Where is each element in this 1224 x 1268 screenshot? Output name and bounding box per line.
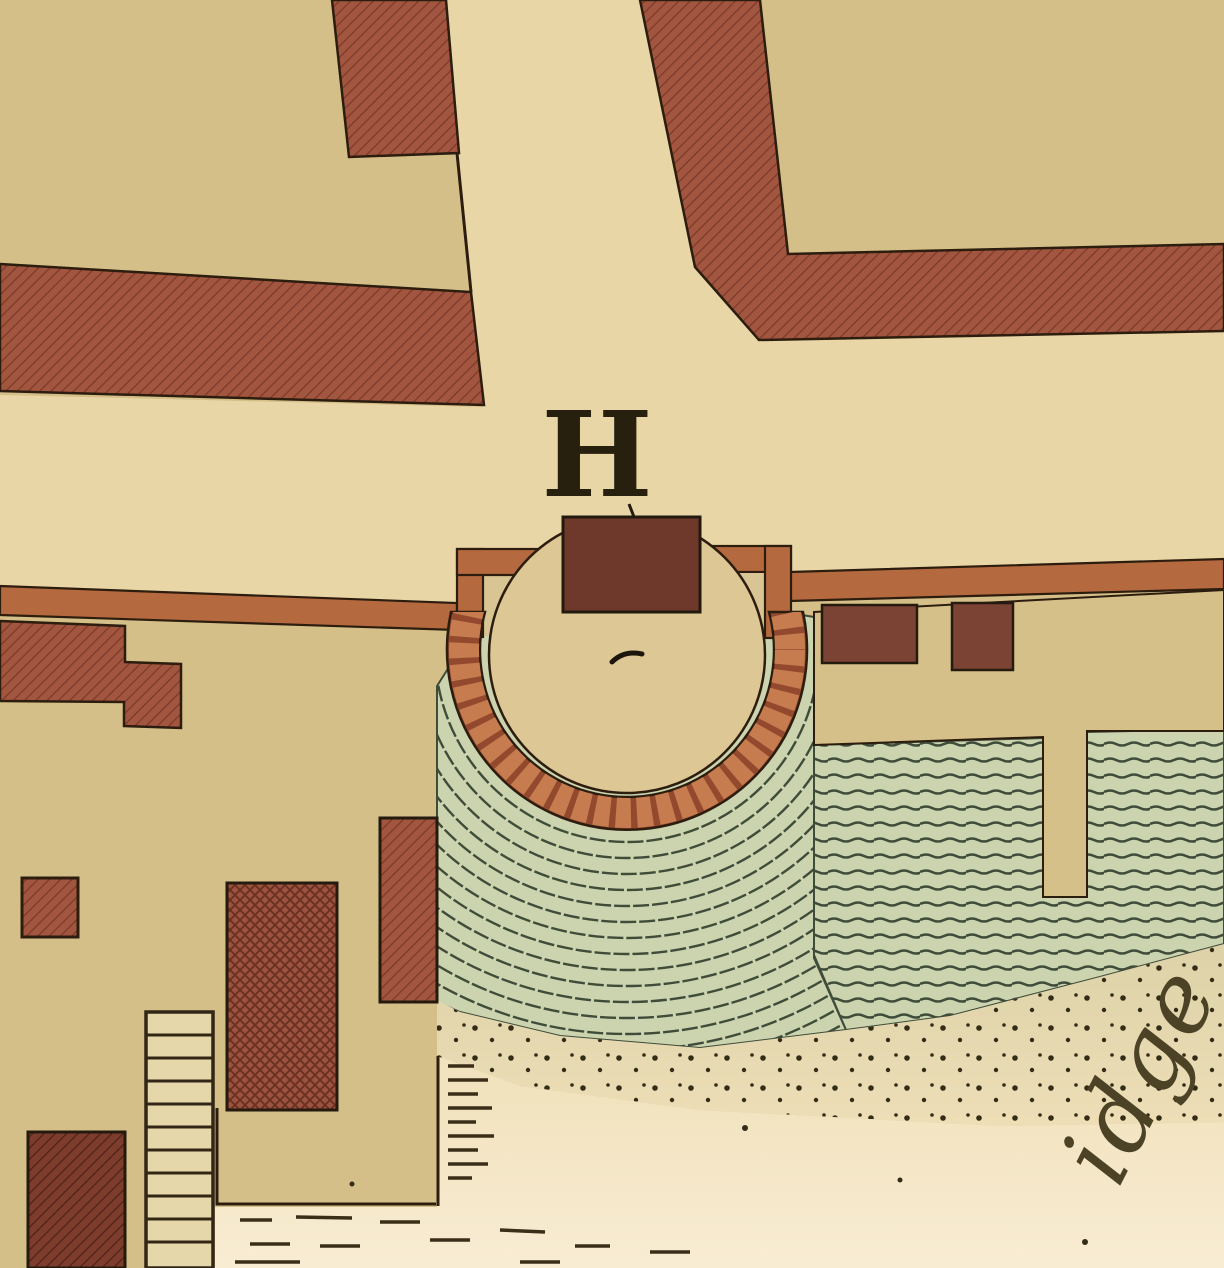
building-block-top-left (332, 0, 459, 157)
label-H: H (541, 385, 653, 524)
small-building (22, 878, 78, 937)
historical-town-plan: H idge (0, 0, 1224, 1268)
quay-building-2 (952, 603, 1013, 670)
ladder-jetty (146, 1012, 213, 1268)
map-canvas[interactable]: H idge (0, 0, 1224, 1268)
bank-building (380, 818, 437, 1002)
crosshatch-building (227, 883, 337, 1110)
corner-building (28, 1132, 125, 1268)
quay-building-1 (822, 605, 917, 663)
